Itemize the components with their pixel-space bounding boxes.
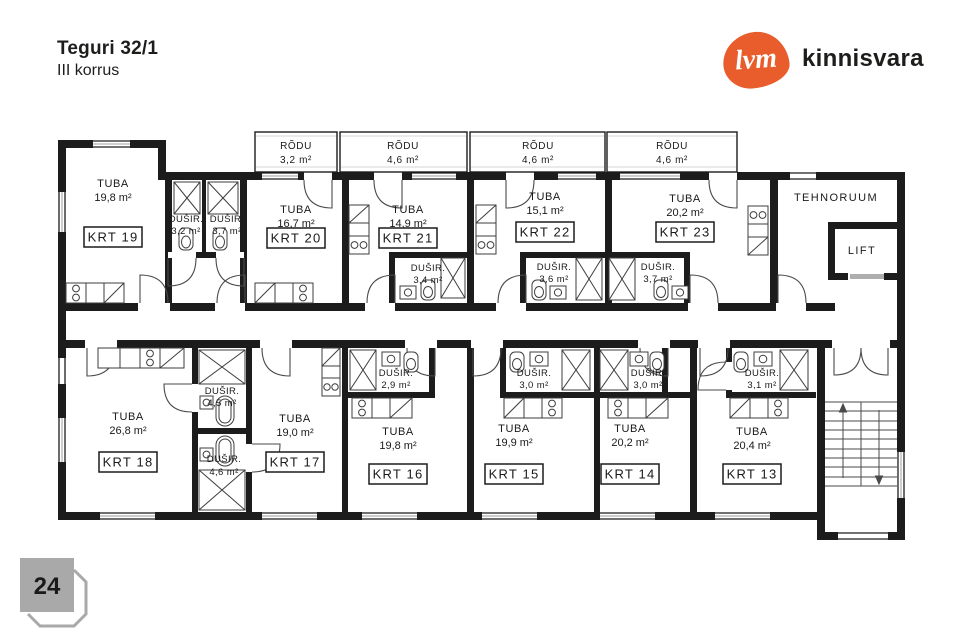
- window: [790, 172, 816, 180]
- window: [93, 140, 130, 148]
- door-arc: [473, 348, 501, 376]
- window: [262, 172, 298, 180]
- room-label-lift: LIFT: [848, 245, 876, 257]
- svg-text:19,9 m²: 19,9 m²: [495, 437, 533, 449]
- window: [58, 192, 66, 232]
- kitchen-krt19: [66, 283, 124, 303]
- svg-text:19,8 m²: 19,8 m²: [94, 192, 132, 204]
- balconies: RÕDU 3,2 m² RÕDU 4,6 m² RÕDU 4,6 m² RÕDU…: [255, 132, 737, 172]
- svg-text:KRT 15: KRT 15: [489, 467, 540, 482]
- page-number-badge: 24: [10, 552, 100, 637]
- counter-icon: [275, 283, 293, 303]
- stove-icon: [140, 348, 160, 368]
- svg-text:15,1 m²: 15,1 m²: [526, 205, 564, 217]
- svg-text:KRT 20: KRT 20: [271, 231, 322, 246]
- fridge-icon: [748, 237, 768, 255]
- door-arc: [709, 180, 737, 208]
- kitchen-krt13: [730, 398, 788, 418]
- svg-text:3,2 m²: 3,2 m²: [171, 226, 200, 237]
- svg-text:TUBA: TUBA: [279, 413, 311, 425]
- counter-icon: [349, 223, 369, 236]
- svg-text:TUBA: TUBA: [97, 178, 129, 190]
- svg-text:TUBA: TUBA: [669, 193, 701, 205]
- window: [262, 512, 317, 520]
- shower-icon: [199, 350, 245, 384]
- counter-icon: [98, 348, 120, 368]
- floor-plan: RÕDU 3,2 m² RÕDU 4,6 m² RÕDU 4,6 m² RÕDU…: [0, 0, 960, 640]
- svg-text:3,4 m²: 3,4 m²: [413, 275, 442, 286]
- door-arc: [778, 275, 806, 303]
- window: [558, 172, 596, 180]
- counter-icon: [476, 223, 496, 236]
- stove-icon: [608, 398, 628, 418]
- shower-icon: [609, 258, 635, 300]
- kitchen-krt21: [349, 205, 369, 254]
- svg-text:TUBA: TUBA: [112, 411, 144, 423]
- sink-icon: [630, 352, 648, 366]
- svg-text:20,2 m²: 20,2 m²: [611, 437, 649, 449]
- fridge-icon: [322, 348, 340, 366]
- door-arc: [861, 348, 888, 375]
- svg-text:KRT 17: KRT 17: [270, 455, 321, 470]
- counter-icon: [322, 366, 340, 378]
- window: [58, 418, 66, 462]
- svg-text:KRT 21: KRT 21: [383, 231, 434, 246]
- shower-icon: [174, 182, 200, 214]
- door-arc: [834, 348, 861, 375]
- kitchen-krt23: [748, 206, 768, 255]
- balcony: RÕDU 4,6 m²: [470, 132, 605, 172]
- fridge-icon: [160, 348, 184, 368]
- svg-text:3,1 m²: 3,1 m²: [747, 380, 776, 391]
- window: [362, 512, 417, 520]
- fridge-icon: [390, 398, 412, 418]
- sink-icon: [530, 352, 548, 366]
- stove-icon: [349, 236, 369, 254]
- counter-icon: [372, 398, 390, 418]
- svg-text:DUŠIR.: DUŠIR.: [205, 386, 240, 397]
- room-label-tehnoruum: TEHNORUUM: [794, 192, 878, 204]
- sink-icon: [400, 286, 416, 299]
- svg-text:DUŠIR.: DUŠIR.: [745, 368, 780, 379]
- door-arc: [164, 384, 192, 412]
- balcony-label: RÕDU: [522, 139, 554, 152]
- balcony-label: RÕDU: [280, 139, 312, 152]
- fridge-icon: [255, 283, 275, 303]
- balcony-label: RÕDU: [656, 139, 688, 152]
- brochure-page: Teguri 32/1 III korrus lvm kinnisvara: [0, 0, 960, 640]
- stove-icon: [322, 378, 340, 396]
- svg-text:DUŠIR.: DUŠIR.: [411, 263, 446, 274]
- window: [412, 172, 456, 180]
- kitchen-krt18: [98, 348, 184, 368]
- svg-text:DUŠIR.: DUŠIR.: [210, 214, 245, 225]
- staircase: [825, 402, 897, 486]
- svg-text:4,5 m²: 4,5 m²: [207, 398, 236, 409]
- shower-icon: [600, 350, 628, 390]
- door-arc: [216, 258, 244, 286]
- kitchen-krt15: [504, 398, 562, 418]
- kitchen-krt14: [608, 398, 668, 418]
- svg-text:TUBA: TUBA: [529, 191, 561, 203]
- fridge-icon: [476, 205, 496, 223]
- counter-icon: [628, 398, 646, 418]
- svg-text:DUŠIR.: DUŠIR.: [537, 262, 572, 273]
- door-arc: [262, 348, 290, 376]
- balcony-area: 4,6 m²: [522, 155, 554, 166]
- balcony: RÕDU 4,6 m²: [607, 132, 737, 172]
- fridge-icon: [349, 205, 369, 223]
- kitchen-krt22: [476, 205, 496, 254]
- svg-text:19,0 m²: 19,0 m²: [276, 427, 314, 439]
- stove-icon: [768, 398, 788, 418]
- counter-icon: [524, 398, 542, 418]
- window: [482, 512, 537, 520]
- door-arc: [140, 275, 168, 303]
- svg-text:KRT 19: KRT 19: [88, 230, 139, 245]
- svg-text:TUBA: TUBA: [280, 204, 312, 216]
- svg-text:DUŠIR.: DUŠIR.: [379, 368, 414, 379]
- svg-text:DUŠIR.: DUŠIR.: [517, 368, 552, 379]
- svg-text:DUŠIR.: DUŠIR.: [207, 454, 242, 465]
- svg-text:KRT 18: KRT 18: [103, 455, 154, 470]
- svg-text:TUBA: TUBA: [736, 426, 768, 438]
- svg-text:19,8 m²: 19,8 m²: [379, 440, 417, 452]
- balcony: RÕDU 3,2 m²: [255, 132, 337, 172]
- stove-icon: [66, 283, 86, 303]
- svg-text:KRT 23: KRT 23: [660, 225, 711, 240]
- window: [897, 452, 905, 498]
- window: [838, 532, 888, 540]
- svg-text:TUBA: TUBA: [392, 204, 424, 216]
- apartment-krt-21: TUBA 14,9 m² KRT 21 DUŠIR. 3,4 m²: [379, 204, 445, 286]
- lift-door: [850, 274, 884, 279]
- counter-icon: [748, 224, 768, 237]
- door-arc: [690, 275, 718, 303]
- window: [58, 358, 66, 384]
- kitchen-krt17: [322, 348, 340, 396]
- stove-icon: [352, 398, 372, 418]
- fridge-icon: [730, 398, 750, 418]
- window: [100, 512, 155, 520]
- door-arc: [168, 258, 196, 286]
- counter-icon: [86, 283, 104, 303]
- kitchen-krt16: [352, 398, 412, 418]
- svg-text:DUŠIR.: DUŠIR.: [641, 262, 676, 273]
- svg-text:2,9 m²: 2,9 m²: [381, 380, 410, 391]
- sink-icon: [382, 352, 400, 366]
- window: [620, 172, 680, 180]
- svg-text:3,6 m²: 3,6 m²: [539, 274, 568, 285]
- svg-text:3,7 m²: 3,7 m²: [212, 226, 241, 237]
- fridge-icon: [504, 398, 524, 418]
- sink-icon: [550, 286, 566, 299]
- apartment-krt-15: TUBA 19,9 m² KRT 15 DUŠIR. 3,0 m²: [485, 368, 551, 484]
- counter-icon: [120, 348, 140, 368]
- fridge-icon: [104, 283, 124, 303]
- sink-icon: [672, 286, 688, 299]
- fridge-icon: [646, 398, 668, 418]
- apartment-krt-16: TUBA 19,8 m² KRT 16 DUŠIR. 2,9 m²: [369, 368, 427, 484]
- svg-text:TUBA: TUBA: [382, 426, 414, 438]
- shower-icon: [208, 182, 238, 214]
- window: [715, 512, 770, 520]
- stove-icon: [476, 236, 496, 254]
- svg-text:DUŠIR.: DUŠIR.: [169, 214, 204, 225]
- svg-text:TUBA: TUBA: [614, 423, 646, 435]
- balcony-area: 3,2 m²: [280, 155, 312, 166]
- balcony-area: 4,6 m²: [656, 155, 688, 166]
- svg-text:KRT 14: KRT 14: [605, 467, 656, 482]
- svg-text:3,7 m²: 3,7 m²: [643, 274, 672, 285]
- svg-text:TUBA: TUBA: [498, 423, 530, 435]
- balcony-label: RÕDU: [387, 139, 419, 152]
- svg-text:3,0 m²: 3,0 m²: [519, 380, 548, 391]
- svg-text:20,2 m²: 20,2 m²: [666, 207, 704, 219]
- svg-text:KRT 22: KRT 22: [520, 225, 571, 240]
- shower-icon: [562, 350, 590, 390]
- sink-icon: [754, 352, 772, 366]
- svg-text:26,8 m²: 26,8 m²: [109, 425, 147, 437]
- stove-icon: [542, 398, 562, 418]
- shower-icon: [576, 258, 602, 300]
- svg-text:DUŠIR.: DUŠIR.: [631, 368, 666, 379]
- shower-icon: [780, 350, 808, 390]
- svg-text:KRT 13: KRT 13: [727, 467, 778, 482]
- counter-icon: [750, 398, 768, 418]
- balcony-area: 4,6 m²: [387, 155, 419, 166]
- svg-text:KRT 16: KRT 16: [373, 467, 424, 482]
- svg-text:20,4 m²: 20,4 m²: [733, 440, 771, 452]
- apartment-krt-23: TUBA 20,2 m² KRT 23 DUŠIR. 3,7 m²: [641, 193, 714, 285]
- svg-text:3,0 m²: 3,0 m²: [633, 380, 662, 391]
- kitchen-krt20: [255, 283, 313, 303]
- shower-icon: [350, 350, 376, 390]
- balcony: RÕDU 4,6 m²: [340, 132, 467, 172]
- svg-text:4,6 m²: 4,6 m²: [209, 467, 238, 478]
- stove-icon: [293, 283, 313, 303]
- window: [600, 512, 655, 520]
- stove-icon: [748, 206, 768, 224]
- page-number: 24: [34, 573, 61, 600]
